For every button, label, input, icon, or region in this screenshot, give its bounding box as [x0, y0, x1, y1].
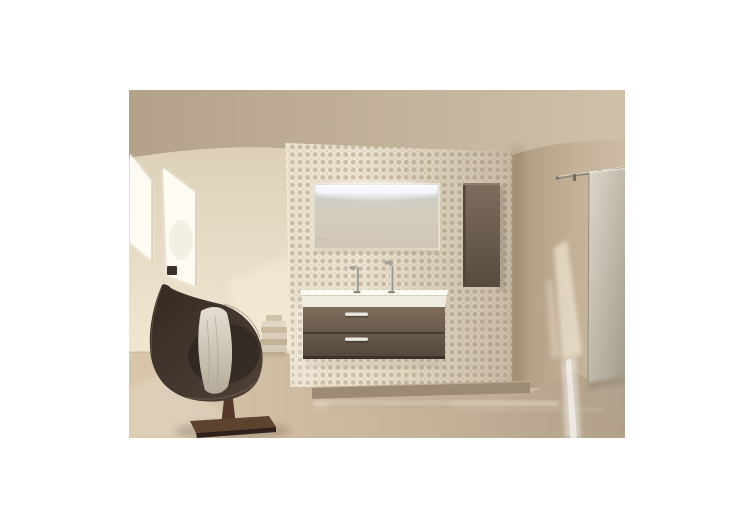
- drawer-handle-bottom: [345, 338, 368, 341]
- vanity-wall-shadow: [307, 361, 441, 367]
- mirror-sensor-dot: [322, 238, 324, 240]
- drawer-handle-top: [345, 313, 368, 316]
- faucet-base: [354, 291, 361, 293]
- vanity-bottom-edge: [303, 356, 445, 359]
- washbasin-front: [301, 295, 447, 307]
- side-cabinet: [463, 183, 500, 287]
- faucet-base: [388, 291, 395, 293]
- bathroom-photo: [129, 90, 625, 438]
- window-shadow-blob: [169, 220, 193, 260]
- towel: [262, 321, 286, 327]
- drawer-handle-shadow: [345, 316, 368, 317]
- faucet-body: [356, 267, 359, 292]
- faucet-body: [390, 266, 393, 292]
- drawer-divider: [303, 332, 445, 334]
- photo-frame: [129, 90, 625, 438]
- towel: [261, 327, 287, 333]
- vanity-floor-reflection: [329, 401, 454, 409]
- door-hanger: [573, 174, 576, 181]
- towel: [262, 333, 287, 339]
- towel: [260, 339, 287, 345]
- washbasin-top: [300, 290, 448, 295]
- page-background: [0, 0, 754, 528]
- mirror-sensor-dot: [326, 238, 328, 240]
- side-cabinet-top: [463, 183, 500, 185]
- window-latch: [167, 266, 177, 275]
- mirror-sensor-dot: [319, 238, 321, 240]
- towel: [261, 345, 287, 352]
- mirror-led-strip: [317, 187, 436, 193]
- side-cabinet-edge: [463, 183, 466, 287]
- drawer-handle-shadow: [345, 341, 368, 342]
- door-rail-endcap: [556, 176, 560, 180]
- mirror-wall-shadow: [315, 250, 438, 253]
- sliding-door: [588, 168, 625, 383]
- mosaic-cast-shadow: [512, 146, 523, 386]
- towel: [266, 315, 282, 321]
